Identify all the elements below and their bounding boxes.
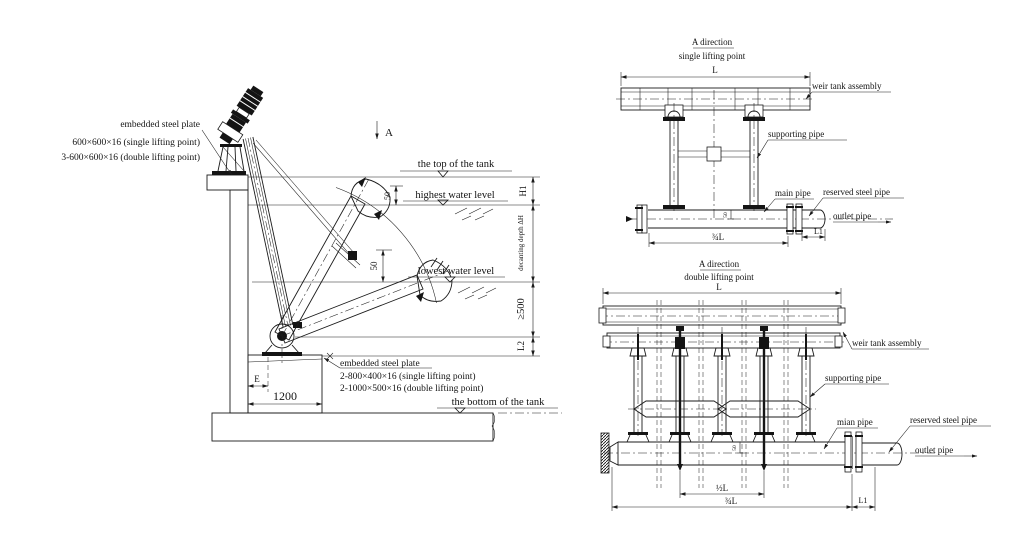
single-supporting-pipes (663, 90, 765, 219)
double-main-pipe (601, 432, 935, 473)
drive-motor (215, 82, 269, 147)
outlet-pipe-end (897, 443, 902, 465)
dim-l2: L2 (516, 341, 526, 351)
double-label-outlet: outlet pipe (915, 445, 953, 455)
svg-text:L: L (716, 282, 722, 292)
lifting-screw-tube (243, 137, 360, 327)
tank-wall (207, 171, 248, 413)
double-title-2: double lifting point (684, 272, 754, 282)
svg-text:50: 50 (732, 445, 738, 451)
svg-text:50: 50 (369, 261, 379, 271)
hanger-bolts (638, 334, 806, 360)
section-a-label: A (385, 127, 393, 139)
svg-text:½L: ½L (716, 483, 728, 493)
dim-e: E (248, 357, 268, 392)
motor-support-frame (218, 144, 244, 171)
tank-floor (212, 413, 562, 441)
svg-text:E: E (254, 374, 260, 384)
decanter-engineering-drawing: the top of the tank highest water level … (0, 0, 1021, 560)
svg-text:2-1000×500×16 (double lifting: 2-1000×500×16 (double lifting point) (340, 383, 483, 394)
single-lifting-view: A direction single lifting point L (616, 37, 904, 247)
single-drop-dim: 50 (723, 210, 734, 219)
svg-text:L1: L1 (814, 227, 823, 236)
plate-note-bottom: embedded steel plate 2-800×400×16 (singl… (324, 353, 483, 394)
double-label-reserved: reserved steel pipe (910, 415, 977, 425)
single-dim-L1: L1 (802, 227, 825, 241)
single-label-outlet: outlet pipe (833, 211, 871, 221)
double-dim-L1: L1 (852, 467, 875, 511)
double-title-1: A direction (699, 259, 740, 269)
svg-text:L1: L1 (859, 496, 868, 505)
dim-decanting-depth: decanting depth ΔH (517, 215, 525, 271)
single-weir-tank (616, 88, 815, 110)
double-drop-dim: 50 (732, 442, 743, 453)
dim-h1: H1 (518, 186, 528, 197)
svg-text:embedded steel plate: embedded steel plate (120, 120, 200, 130)
single-flange (787, 204, 793, 234)
decanter-arm-raised (275, 177, 390, 340)
double-dim-three-quarter-L: ¾L (612, 467, 852, 511)
blind-flange (601, 433, 609, 473)
single-label-reserved: reserved steel pipe (823, 187, 890, 197)
brace-joint (707, 147, 721, 161)
double-dim-L: L (603, 282, 841, 304)
svg-text:¾L: ¾L (725, 496, 737, 506)
single-title-1: A direction (692, 37, 733, 47)
single-label-supporting: supporting pipe (768, 129, 824, 139)
dim-1200: 1200 (248, 389, 322, 404)
svg-text:3-600×600×16 (double lifting p: 3-600×600×16 (double lifting point) (61, 152, 200, 163)
label-highest-water: highest water level (415, 190, 494, 201)
single-label-main: main pipe (775, 188, 811, 198)
svg-text:L: L (712, 65, 718, 75)
single-title-2: single lifting point (679, 51, 746, 61)
base-flanges (627, 432, 816, 442)
svg-text:50: 50 (723, 212, 729, 218)
single-dim-L: L (621, 65, 810, 86)
side-view-diagram: the top of the tank highest water level … (61, 82, 562, 441)
water-ripple-low (458, 287, 496, 299)
vertical-dimension-chain: H1 decanting depth ΔH ≥500 L2 (516, 177, 533, 356)
svg-text:¾L: ¾L (712, 232, 724, 242)
offset-50-upper: 50 (383, 186, 403, 205)
svg-text:2-800×400×16 (single lifting p: 2-800×400×16 (single lifting point) (340, 371, 476, 382)
water-ripple-high (455, 208, 493, 220)
double-label-supporting: supporting pipe (825, 373, 881, 383)
double-label-weir: weir tank assembly (852, 338, 922, 348)
double-lifting-view: A direction double lifting point L (599, 259, 991, 511)
label-top-of-tank: the top of the tank (418, 159, 495, 170)
label-lowest-water: lowest water level (418, 266, 494, 277)
embedded-plate-top (212, 171, 246, 175)
technical-drawing-page: the top of the tank highest water level … (0, 0, 1021, 560)
single-dim-three-quarter-L: ¾L (649, 232, 788, 247)
offset-50-lower: 50 (369, 250, 392, 282)
label-bottom-of-tank: the bottom of the tank (452, 397, 545, 408)
plate-note-top: embedded steel plate 600×600×16 (single … (61, 120, 232, 175)
double-label-main: mian pipe (837, 417, 873, 427)
double-dim-half-L: ½L (680, 471, 764, 498)
section-a-mark: A (377, 121, 393, 139)
dim-min-500: ≥500 (516, 298, 527, 320)
single-label-weir: weir tank assembly (812, 81, 882, 91)
svg-text:1200: 1200 (273, 389, 297, 403)
svg-text:embedded steel plate: embedded steel plate (340, 359, 420, 369)
svg-text:600×600×16 (single lifting poi: 600×600×16 (single lifting point) (72, 137, 200, 148)
svg-text:50: 50 (383, 192, 392, 200)
